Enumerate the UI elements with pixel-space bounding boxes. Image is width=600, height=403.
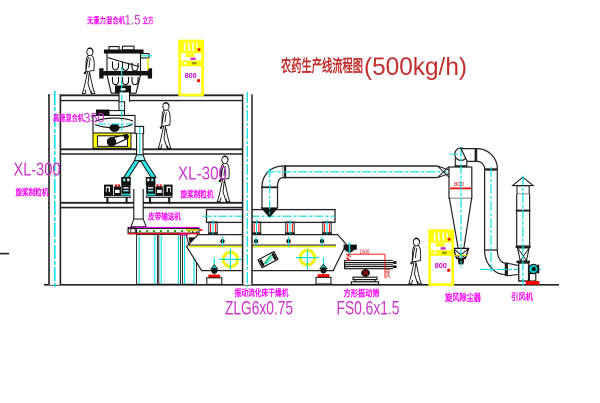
- svg-text:XL-300: XL-300: [178, 163, 227, 184]
- svg-text:XL-300: XL-300: [14, 158, 61, 179]
- svg-text:皮带输送机: 皮带输送机: [147, 210, 181, 221]
- svg-text:340: 340: [386, 269, 392, 278]
- svg-text:方形振动筛: 方形振动筛: [344, 287, 380, 298]
- svg-text:振动流化床干燥机: 振动流化床干燥机: [235, 287, 289, 298]
- svg-text:ZLG6x0.75: ZLG6x0.75: [225, 298, 293, 319]
- svg-text:农药生产线流程图: 农药生产线流程图: [280, 56, 363, 76]
- svg-text:1500: 1500: [360, 250, 370, 256]
- svg-text:立方: 立方: [143, 16, 154, 26]
- svg-text:1.5: 1.5: [125, 13, 141, 28]
- svg-text:无重力混合机: 无重力混合机: [86, 16, 125, 26]
- svg-text:旋风除尘器: 旋风除尘器: [444, 292, 481, 304]
- svg-text:FS0.6x1.5: FS0.6x1.5: [337, 298, 400, 319]
- svg-text:(500kg/h): (500kg/h): [364, 53, 467, 81]
- svg-text:引风机: 引风机: [511, 291, 533, 302]
- svg-text:高速混合机: 高速混合机: [53, 113, 84, 123]
- svg-text:旋桨制粒机: 旋桨制粒机: [15, 187, 49, 198]
- svg-text:旋桨制粒机: 旋桨制粒机: [180, 189, 214, 200]
- svg-text:350: 350: [84, 110, 105, 125]
- svg-text:800: 800: [454, 182, 464, 188]
